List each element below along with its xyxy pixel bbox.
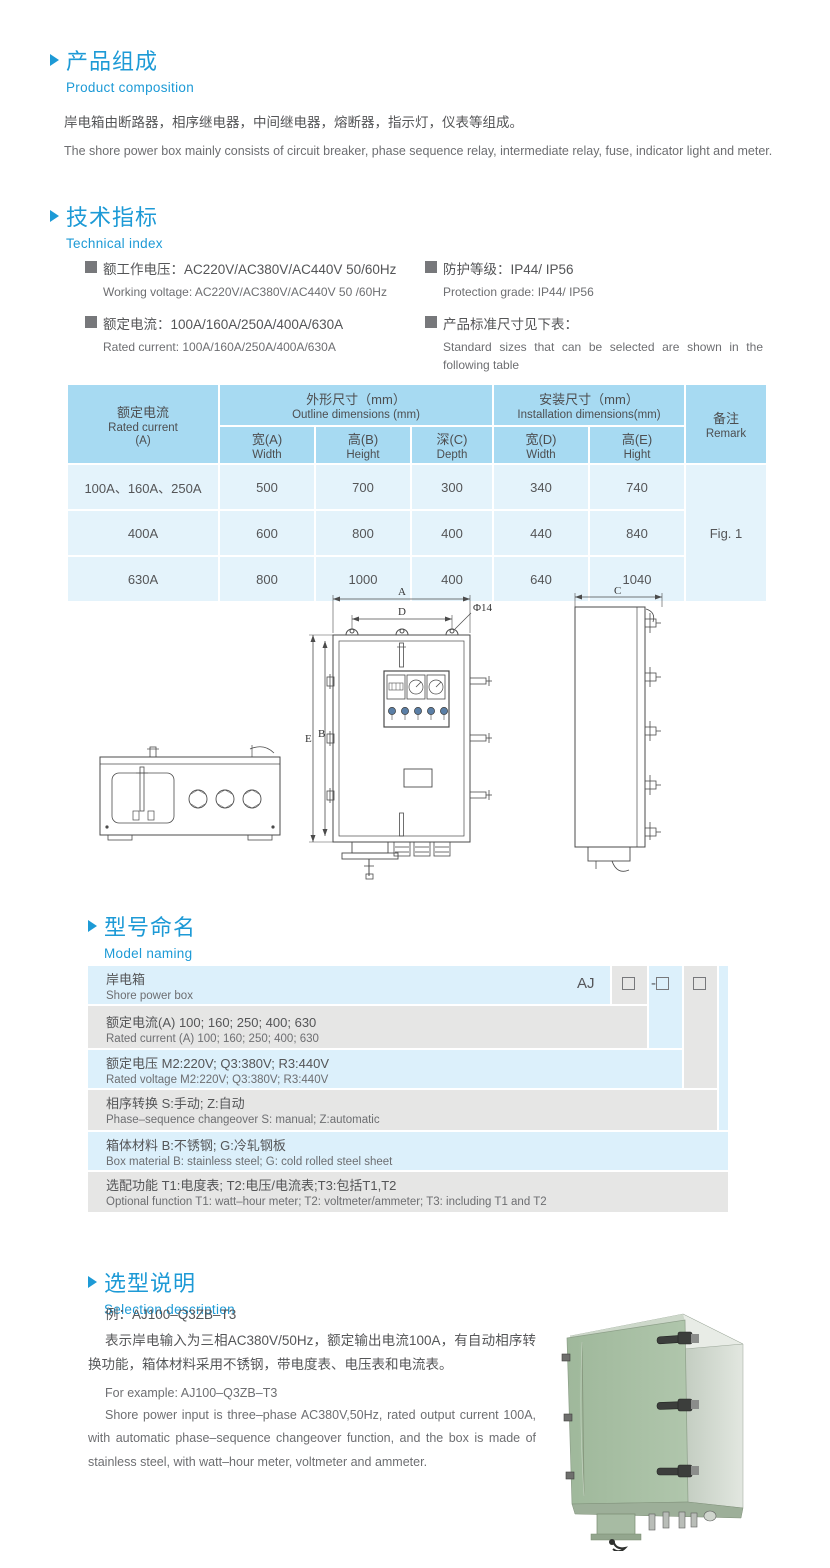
cell-height-e: 840	[590, 511, 684, 555]
header-remark: 备注 Remark	[686, 385, 766, 463]
naming-row-box-material: 箱体材料 B:不锈钢; G:冷轧钢板 Box material B: stain…	[88, 1132, 728, 1170]
square-bullet-icon	[85, 261, 97, 273]
spec-protection-grade: 防护等级：IP44/ IP56 Protection grade: IP44/ …	[425, 258, 785, 301]
header-outline-dimensions: 外形尺寸（mm） Outline dimensions (mm)	[220, 385, 492, 425]
section-arrow-icon	[50, 54, 59, 66]
dim-label-d: D	[398, 606, 406, 618]
product-photo	[545, 1296, 795, 1551]
cell-depth-c: 400	[412, 511, 492, 555]
section-title-cn: 选型说明	[104, 1266, 196, 1298]
section-arrow-icon	[88, 920, 97, 932]
spec-rated-current: 额定电流：100A/160A/250A/400A/630A Rated curr…	[85, 313, 445, 356]
dim-label-phi14: Φ14	[473, 602, 493, 614]
cell-width-d: 340	[494, 465, 588, 509]
technical-drawing: A D Φ14 E B C	[0, 585, 830, 885]
header-height-e: 高(E)Hight	[590, 427, 684, 463]
header-width-a: 宽(A)Width	[220, 427, 314, 463]
dim-label-b: B	[318, 728, 325, 740]
spec-en-text: Standard sizes that can be selected are …	[443, 338, 763, 374]
catalog-page: 产品组成 Product composition 岸电箱由断路器，相序继电器，中…	[0, 0, 830, 1568]
naming-row-shore-power-box: 岸电箱 Shore power box	[88, 966, 610, 1004]
spec-column-right: 防护等级：IP44/ IP56 Protection grade: IP44/ …	[425, 258, 785, 386]
dimension-table: 额定电流 Rated current (A) 外形尺寸（mm） Outline …	[66, 383, 768, 603]
model-naming-table: 岸电箱 Shore power box 额定电流(A) 100; 160; 25…	[88, 966, 728, 1212]
cell-height-b: 700	[316, 465, 410, 509]
section-title-en: Model naming	[104, 946, 196, 961]
section-product-composition: 产品组成 Product composition 岸电箱由断路器，相序继电器，中…	[50, 44, 790, 161]
dim-label-e: E	[305, 733, 312, 745]
header-height-b: 高(B)Height	[316, 427, 410, 463]
cell-height-e: 740	[590, 465, 684, 509]
selection-body-en: Shore power input is three–phase AC380V,…	[88, 1404, 536, 1473]
code-column-material	[719, 966, 728, 1130]
cell-current: 400A	[68, 511, 218, 555]
square-bullet-icon	[425, 261, 437, 273]
spec-en-text: Protection grade: IP44/ IP56	[443, 283, 785, 301]
header-depth-c: 深(C)Depth	[412, 427, 492, 463]
cell-height-b: 800	[316, 511, 410, 555]
cell-width-a: 500	[220, 465, 314, 509]
example-model-cn: 例：AJ100–Q3ZB–T3	[88, 1303, 536, 1323]
header-width-d: 宽(D)Width	[494, 427, 588, 463]
example-model-en: For example: AJ100–Q3ZB–T3	[88, 1386, 536, 1400]
composition-text-cn: 岸电箱由断路器，相序继电器，中间继电器，熔断器，指示灯，仪表等组成。	[64, 112, 790, 134]
placeholder-box-icon	[693, 977, 706, 990]
dim-label-a: A	[398, 586, 406, 598]
header-rated-current: 额定电流 Rated current (A)	[68, 385, 218, 463]
placeholder-box-icon	[622, 977, 635, 990]
composition-text-en: The shore power box mainly consists of c…	[64, 141, 790, 161]
section-title-cn: 技术指标	[66, 200, 158, 232]
cell-width-a: 600	[220, 511, 314, 555]
section-arrow-icon	[50, 210, 59, 222]
spec-working-voltage: 额工作电压：AC220V/AC380V/AC440V 50/60Hz Worki…	[85, 258, 445, 301]
spec-cn-text: 额工作电压：AC220V/AC380V/AC440V 50/60Hz	[103, 258, 396, 278]
code-box-voltage: -	[651, 975, 669, 992]
naming-row-optional-function: 选配功能 T1:电度表; T2:电压/电流表;T3:包括T1,T2 Option…	[88, 1172, 728, 1212]
section-title-cn: 产品组成	[66, 44, 158, 76]
section-title-cn: 型号命名	[104, 910, 196, 942]
header-installation-dimensions: 安装尺寸（mm） Installation dimensions(mm)	[494, 385, 684, 425]
section-arrow-icon	[88, 1276, 97, 1288]
spec-en-text: Rated current: 100A/160A/250A/400A/630A	[103, 338, 445, 356]
dim-label-c: C	[614, 585, 621, 597]
spec-en-text: Working voltage: AC220V/AC380V/AC440V 50…	[103, 283, 445, 301]
cell-remark: Fig. 1	[686, 465, 766, 601]
selection-text-block: 例：AJ100–Q3ZB–T3 表示岸电输入为三相AC380V/50Hz，额定输…	[88, 1303, 536, 1474]
section-title-en: Technical index	[66, 236, 790, 251]
naming-row-rated-current: 额定电流(A) 100; 160; 250; 400; 630 Rated cu…	[88, 1006, 647, 1048]
square-bullet-icon	[85, 316, 97, 328]
spec-standard-sizes: 产品标准尺寸见下表： Standard sizes that can be se…	[425, 313, 785, 374]
cell-depth-c: 300	[412, 465, 492, 509]
naming-row-phase-sequence: 相序转换 S:手动; Z:自动 Phase–sequence changeove…	[88, 1090, 717, 1130]
code-prefix: AJ	[577, 975, 595, 992]
naming-row-rated-voltage: 额定电压 M2:220V; Q3:380V; R3:440V Rated vol…	[88, 1050, 682, 1088]
spec-column-left: 额工作电压：AC220V/AC380V/AC440V 50/60Hz Worki…	[85, 258, 445, 368]
code-box-current	[622, 975, 635, 992]
section-technical-index: 技术指标 Technical index	[50, 200, 790, 251]
code-box-phase	[693, 975, 706, 992]
placeholder-box-icon	[656, 977, 669, 990]
square-bullet-icon	[425, 316, 437, 328]
table-row: 400A 600 800 400 440 840	[68, 511, 766, 555]
cell-width-d: 440	[494, 511, 588, 555]
cell-current: 100A、160A、250A	[68, 465, 218, 509]
table-row: 100A、160A、250A 500 700 300 340 740 Fig. …	[68, 465, 766, 509]
spec-cn-text: 额定电流：100A/160A/250A/400A/630A	[103, 313, 343, 333]
section-model-naming: 型号命名 Model naming	[88, 910, 196, 961]
section-title-en: Product composition	[66, 80, 790, 95]
spec-cn-text: 产品标准尺寸见下表：	[443, 313, 578, 333]
selection-body-cn: 表示岸电输入为三相AC380V/50Hz，额定输出电流100A，有自动相序转换功…	[88, 1329, 536, 1376]
spec-cn-text: 防护等级：IP44/ IP56	[443, 258, 574, 278]
